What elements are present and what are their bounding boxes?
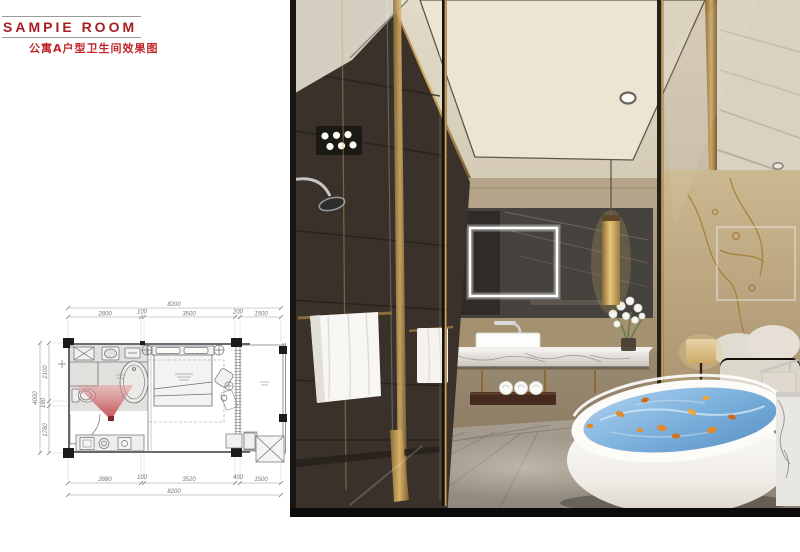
dim-left-seg1: 2100 bbox=[43, 365, 49, 380]
plan-chair bbox=[214, 368, 238, 411]
bathroom-render bbox=[290, 0, 800, 517]
dim-bottom-seg5: 1500 bbox=[254, 477, 268, 483]
presentation-board: { "logo": { "title": "SAMPIE ROOM", "sub… bbox=[0, 0, 800, 552]
dim-bottom-seg1: 2880 bbox=[97, 477, 112, 483]
plan-drain-symbol bbox=[58, 360, 66, 368]
rolled-towels bbox=[500, 382, 543, 395]
dim-top-seg5: 1500 bbox=[254, 312, 268, 318]
dim-top-seg3: 3500 bbox=[182, 312, 196, 318]
plan-camera-marker bbox=[108, 416, 114, 421]
vessel-sink bbox=[476, 333, 540, 349]
photo-bottom-bar bbox=[290, 508, 800, 517]
floor-plan-drawing: 8200 2800 100 3500 200 1500 4000 2100 18… bbox=[28, 286, 290, 518]
plan-bed bbox=[142, 345, 224, 406]
dim-top-seg4: 200 bbox=[232, 310, 244, 316]
logo-block: SAMPIE ROOM 公寓A户型卫生间效果图 bbox=[2, 16, 172, 56]
logo-title: SAMPIE ROOM bbox=[2, 16, 141, 38]
dim-left-seg2: 180 bbox=[41, 397, 47, 408]
spotlight-panel bbox=[316, 126, 362, 155]
dim-top-seg2: 100 bbox=[137, 310, 148, 316]
bathroom-render-photo bbox=[290, 0, 800, 517]
dim-top-total: 8200 bbox=[167, 302, 181, 308]
floor-plan: 8200 2800 100 3500 200 1500 4000 2100 18… bbox=[28, 286, 290, 518]
dim-bottom-total: 8200 bbox=[167, 489, 181, 495]
dim-bottom-seg2: 100 bbox=[137, 475, 148, 481]
marble-column bbox=[776, 392, 800, 506]
plan-entry bbox=[70, 414, 144, 451]
render-vanity-wall bbox=[445, 160, 657, 405]
dim-top-seg1: 2800 bbox=[97, 312, 112, 318]
logo-subtitle: 公寓A户型卫生间效果图 bbox=[29, 40, 172, 56]
photo-left-edge bbox=[290, 0, 296, 517]
dim-bottom-seg3: 3520 bbox=[182, 477, 196, 483]
downlight-icon bbox=[621, 93, 636, 104]
dim-left-seg3: 1780 bbox=[43, 423, 49, 437]
dim-left-total: 4000 bbox=[33, 391, 39, 405]
dim-bottom-seg4: 400 bbox=[233, 475, 244, 481]
